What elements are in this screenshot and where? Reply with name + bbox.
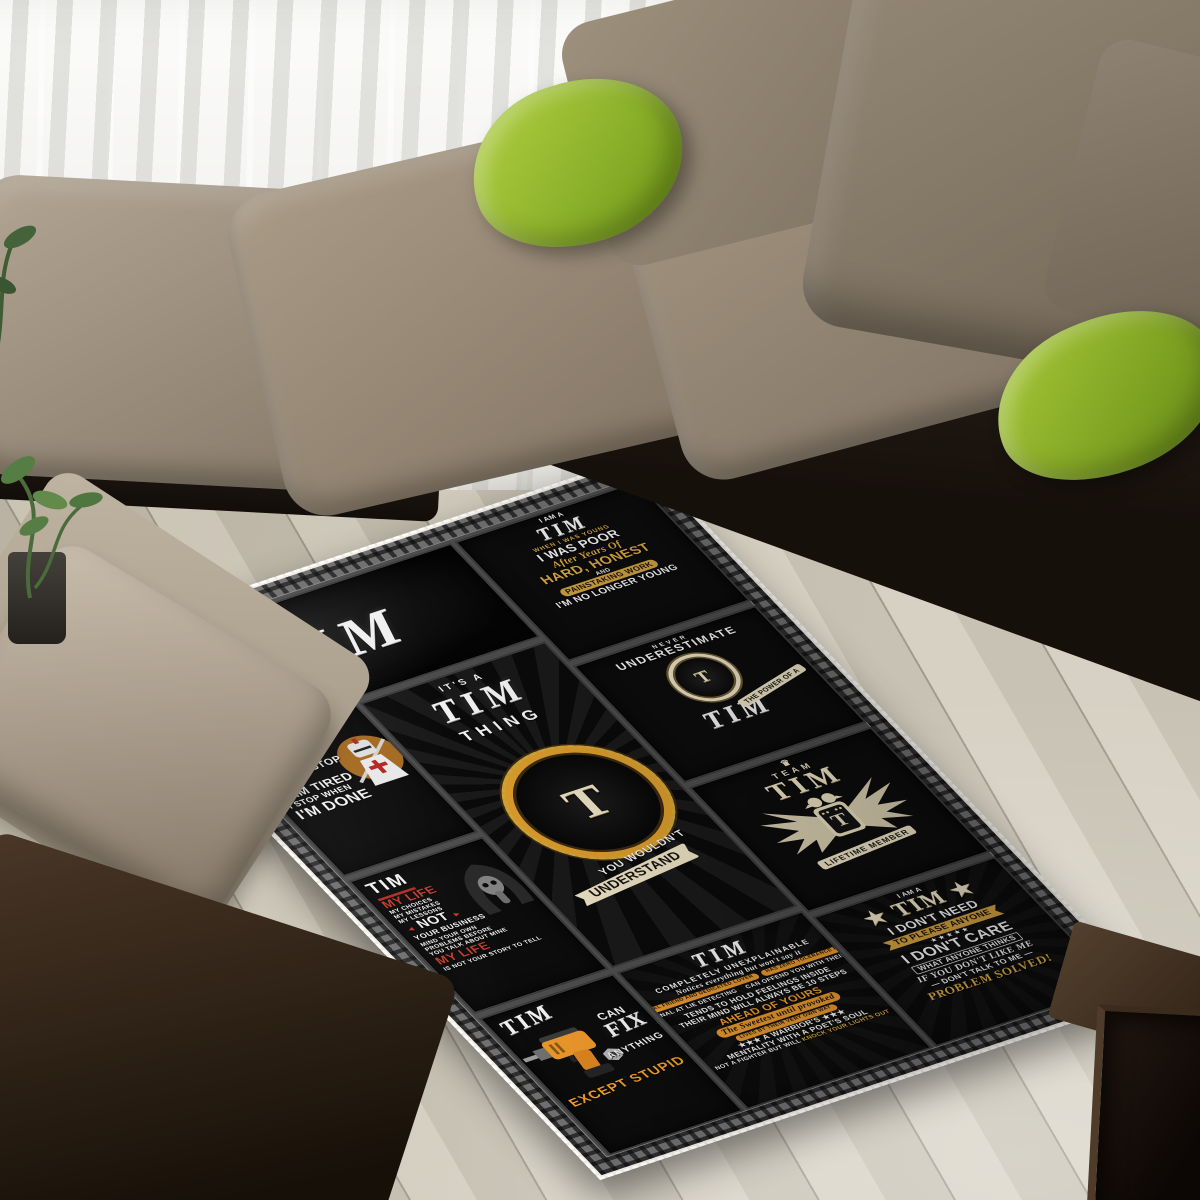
plant-icon	[0, 408, 160, 608]
plant-leaf-icon	[0, 215, 66, 355]
power-banner: THE POWER OF A	[737, 663, 808, 708]
t-monogram: T	[552, 776, 626, 828]
living-room-photo: TIM I	[0, 0, 1200, 1200]
side-table-front	[1087, 1005, 1200, 1200]
